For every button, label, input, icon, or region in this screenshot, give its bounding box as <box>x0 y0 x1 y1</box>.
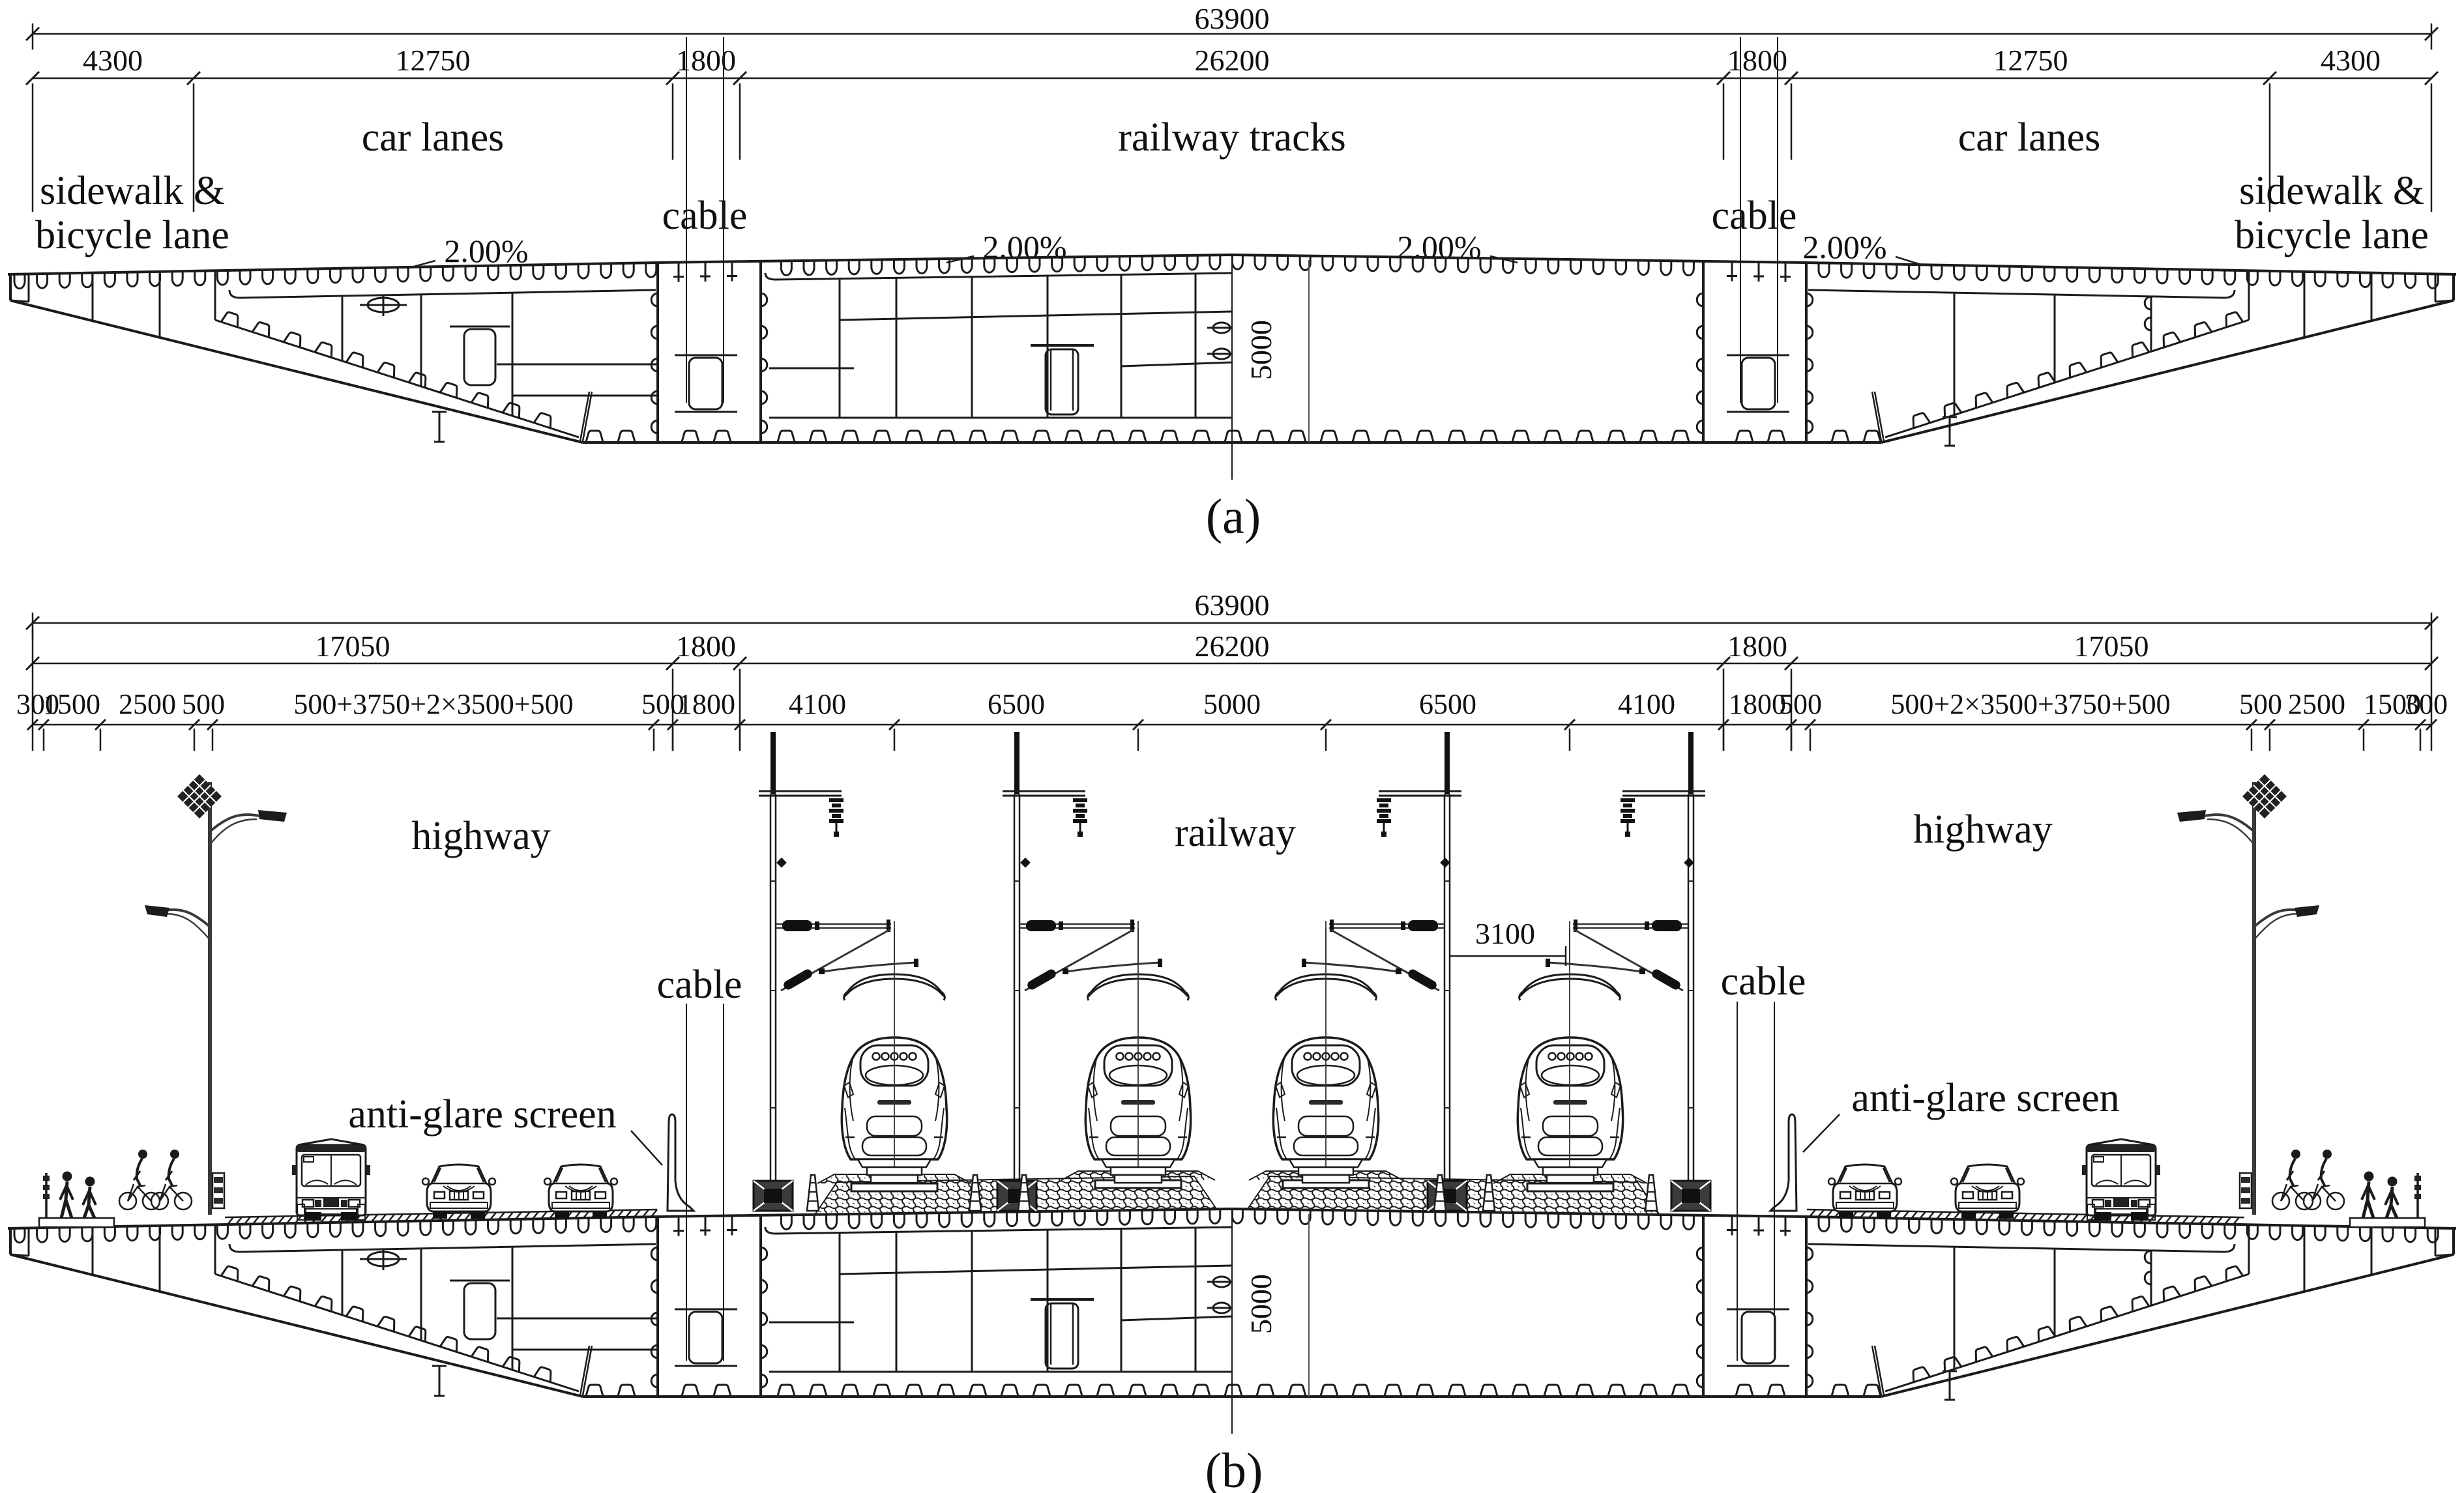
svg-text:500: 500 <box>1779 688 1822 720</box>
svg-text:bicycle lane: bicycle lane <box>35 213 229 257</box>
svg-text:cable: cable <box>1721 959 1806 1004</box>
svg-text:6500: 6500 <box>1419 688 1476 720</box>
svg-text:17050: 17050 <box>2074 630 2149 663</box>
svg-text:500+3750+2×3500+500: 500+3750+2×3500+500 <box>293 688 573 720</box>
svg-text:railway tracks: railway tracks <box>1118 115 1345 160</box>
svg-text:3100: 3100 <box>1475 917 1535 950</box>
svg-text:car lanes: car lanes <box>362 115 505 160</box>
svg-text:1800: 1800 <box>676 44 736 77</box>
svg-text:railway: railway <box>1175 811 1296 855</box>
svg-text:63900: 63900 <box>1195 588 1270 622</box>
svg-text:cable: cable <box>657 963 742 1007</box>
svg-text:2.00%: 2.00% <box>1802 229 1886 265</box>
svg-text:1800: 1800 <box>678 688 735 720</box>
svg-text:300: 300 <box>2405 688 2448 720</box>
svg-text:cable: cable <box>1712 194 1797 238</box>
svg-text:1800: 1800 <box>1727 44 1787 77</box>
svg-text:500: 500 <box>182 688 225 720</box>
svg-text:4300: 4300 <box>2321 44 2381 77</box>
svg-text:cable: cable <box>662 194 748 238</box>
svg-text:sidewalk &: sidewalk & <box>2239 169 2424 213</box>
svg-text:highway: highway <box>1913 807 2053 852</box>
svg-text:4300: 4300 <box>83 44 143 77</box>
svg-text:2.00%: 2.00% <box>444 233 528 269</box>
svg-text:(b): (b) <box>1205 1443 1263 1493</box>
svg-text:1500: 1500 <box>43 688 100 720</box>
svg-text:5000: 5000 <box>1203 688 1261 720</box>
svg-text:12750: 12750 <box>1993 44 2068 77</box>
svg-text:1800: 1800 <box>1727 630 1787 663</box>
svg-text:26200: 26200 <box>1195 44 1270 77</box>
svg-text:12750: 12750 <box>396 44 471 77</box>
svg-text:(a): (a) <box>1206 489 1261 544</box>
svg-text:highway: highway <box>411 814 551 858</box>
svg-text:1800: 1800 <box>676 630 736 663</box>
svg-text:17050: 17050 <box>315 630 390 663</box>
svg-text:car lanes: car lanes <box>1958 115 2101 160</box>
svg-text:4100: 4100 <box>789 688 846 720</box>
svg-text:63900: 63900 <box>1195 2 1270 35</box>
svg-text:anti-glare screen: anti-glare screen <box>1851 1076 2119 1120</box>
svg-text:1800: 1800 <box>1729 688 1786 720</box>
svg-text:4100: 4100 <box>1618 688 1675 720</box>
svg-text:500: 500 <box>2239 688 2282 720</box>
svg-text:2500: 2500 <box>2288 688 2345 720</box>
svg-text:anti-glare screen: anti-glare screen <box>348 1092 616 1137</box>
svg-text:500+2×3500+3750+500: 500+2×3500+3750+500 <box>1890 688 2170 720</box>
svg-text:2500: 2500 <box>119 688 176 720</box>
svg-text:6500: 6500 <box>988 688 1045 720</box>
svg-text:sidewalk &: sidewalk & <box>40 169 225 213</box>
svg-text:26200: 26200 <box>1195 630 1270 663</box>
svg-text:bicycle lane: bicycle lane <box>2235 213 2429 257</box>
